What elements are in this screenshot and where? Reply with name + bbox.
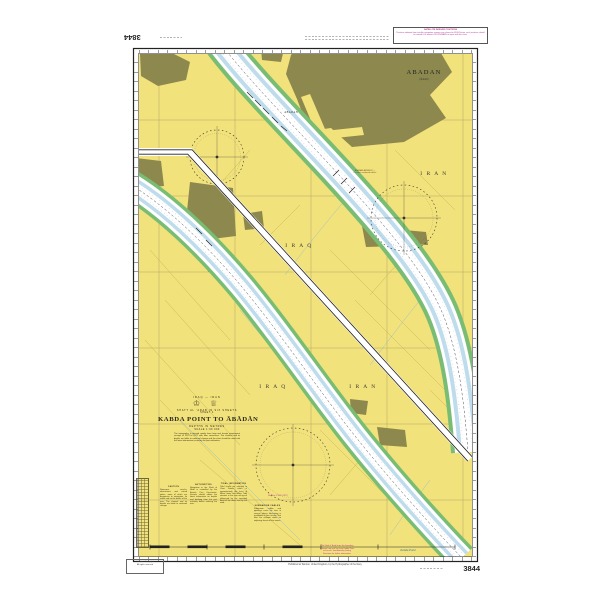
graduation-band-top: [139, 50, 472, 54]
label-city-abadan: ABADAN: [406, 69, 441, 76]
label-town-abadan: A B A D A N: [284, 111, 298, 114]
satellite-positions-note-body: Positions obtained from satellite naviga…: [396, 32, 485, 37]
title-source-note: The topography is derived mainly from Ir…: [174, 433, 240, 443]
label-iraq-upper: I R A Q: [285, 243, 312, 249]
note-tidal: TIDAL INFORMATION Tidal levels are refer…: [220, 483, 247, 505]
title-block: IRAQ — IRAN ♔ ♕ SHATT AL 'ARAB IN SIX SH…: [158, 396, 256, 443]
label-city-abadan-sub: (Ābādān): [419, 78, 429, 81]
chart-number: 3844: [452, 564, 480, 573]
print-code-micro-text: [420, 568, 444, 569]
airfield-note: ABADAN AIRFIELD — Caution: overhead cabl…: [351, 170, 379, 175]
chart-map: I R A Q I R A N I R A Q I R A N ABADAN (…: [0, 0, 600, 600]
label-iran-upper: I R A N: [420, 171, 447, 177]
magnetic-variation-note: Mag Var 2°30′E (1977): [255, 495, 301, 497]
copyright-box: © Crown Copyright All rights reserved: [126, 559, 164, 574]
chart-number-top-rotated: 3844: [124, 33, 141, 42]
title-scale-line: SCALE 1:30 000: [158, 428, 256, 431]
label-kabda-point: Kabda Point: [399, 548, 415, 552]
boundary-note-line4: Directions for further information.: [308, 553, 366, 556]
top-margin-strip-text-2: [305, 39, 389, 40]
nautical-chart-sheet: I R A Q I R A N I R A Q I R A N ABADAN (…: [0, 0, 600, 600]
top-margin-strip-text-1: [305, 36, 389, 37]
note-authorities: AUTHORITIES Navigation in the Shatt al '…: [190, 484, 217, 506]
conversion-scale-table: [136, 478, 149, 548]
publication-imprint: Published at Taunton, United Kingdom, by…: [185, 564, 465, 566]
satellite-positions-note: SATELLITE-DERIVED POSITIONS Positions ob…: [393, 27, 488, 44]
national-crests-icon: ♔ ♕: [158, 399, 256, 408]
note-authorities-title: AUTHORITIES: [190, 484, 217, 486]
graduation-band-right: [473, 54, 477, 557]
note-tidal-title: TIDAL INFORMATION: [220, 483, 247, 485]
note-cables: SUBMARINE CABLES Submarine cables and pi…: [254, 505, 281, 522]
copyright-line2: All rights reserved: [128, 564, 162, 567]
title-sheet-line: SHEET 4: [158, 412, 256, 414]
chart-title: KABDA POINT TO ĀBĀDĀN: [158, 416, 256, 423]
top-margin-micro-text: [160, 37, 182, 38]
note-cables-title: SUBMARINE CABLES: [254, 505, 281, 507]
label-iraq-lower: I R A Q: [259, 384, 286, 390]
boundary-note: The Shatt al 'Arab forms the boundary be…: [308, 545, 366, 555]
note-caution-body: Numerous wrecks, obstructions and ruined…: [160, 489, 187, 507]
note-caution: CAUTION Numerous wrecks, obstructions an…: [160, 486, 187, 508]
note-authorities-body: Navigation in the Shatt al 'Arab is cont…: [190, 487, 217, 505]
graduation-band-bottom: [139, 557, 472, 561]
note-cables-body: Submarine cables and pipelines cross the…: [254, 508, 281, 522]
note-caution-title: CAUTION: [160, 486, 187, 488]
note-tidal-body: Tidal levels are referred to Chart Datum…: [220, 486, 247, 504]
label-iran-lower: I R A N: [349, 384, 376, 390]
